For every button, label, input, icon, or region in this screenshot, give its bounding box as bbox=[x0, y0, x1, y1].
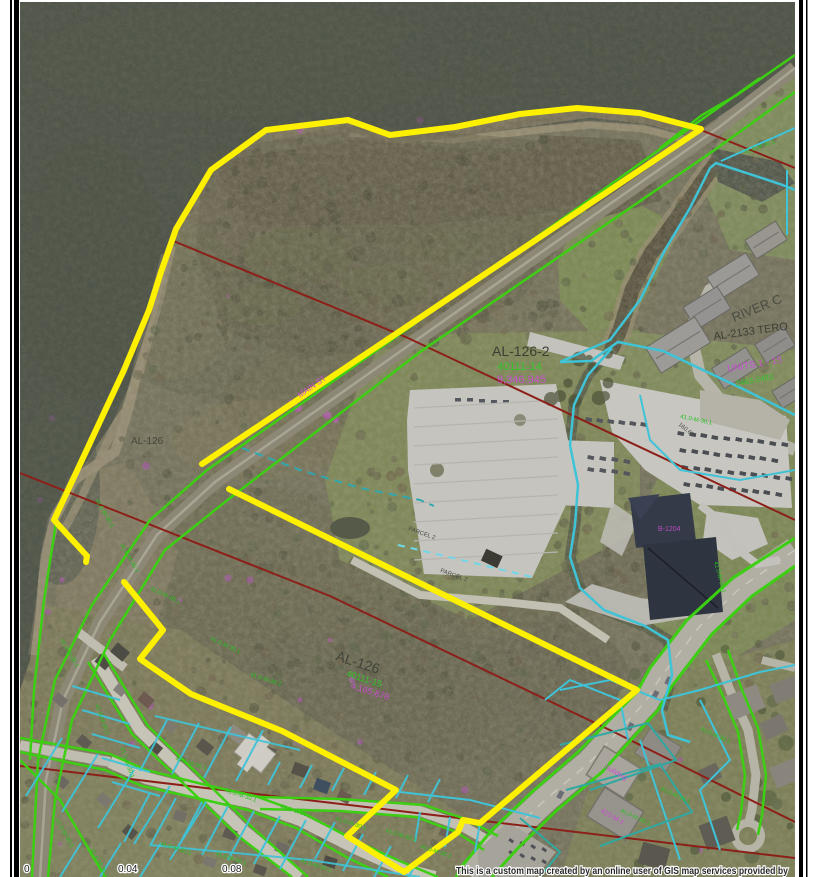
svg-text:This is a custom map created b: This is a custom map created by an onlin… bbox=[456, 865, 788, 877]
svg-text:40111-14: 40111-14 bbox=[497, 361, 542, 373]
svg-text:B-1204: B-1204 bbox=[658, 526, 681, 533]
svg-text:9,346,945: 9,346,945 bbox=[497, 374, 546, 386]
svg-text:0.08: 0.08 bbox=[222, 864, 242, 875]
svg-text:0: 0 bbox=[24, 864, 30, 875]
svg-text:0.04: 0.04 bbox=[118, 864, 138, 875]
svg-text:AL-126: AL-126 bbox=[131, 436, 164, 447]
svg-text:AL-126-2: AL-126-2 bbox=[492, 343, 550, 359]
